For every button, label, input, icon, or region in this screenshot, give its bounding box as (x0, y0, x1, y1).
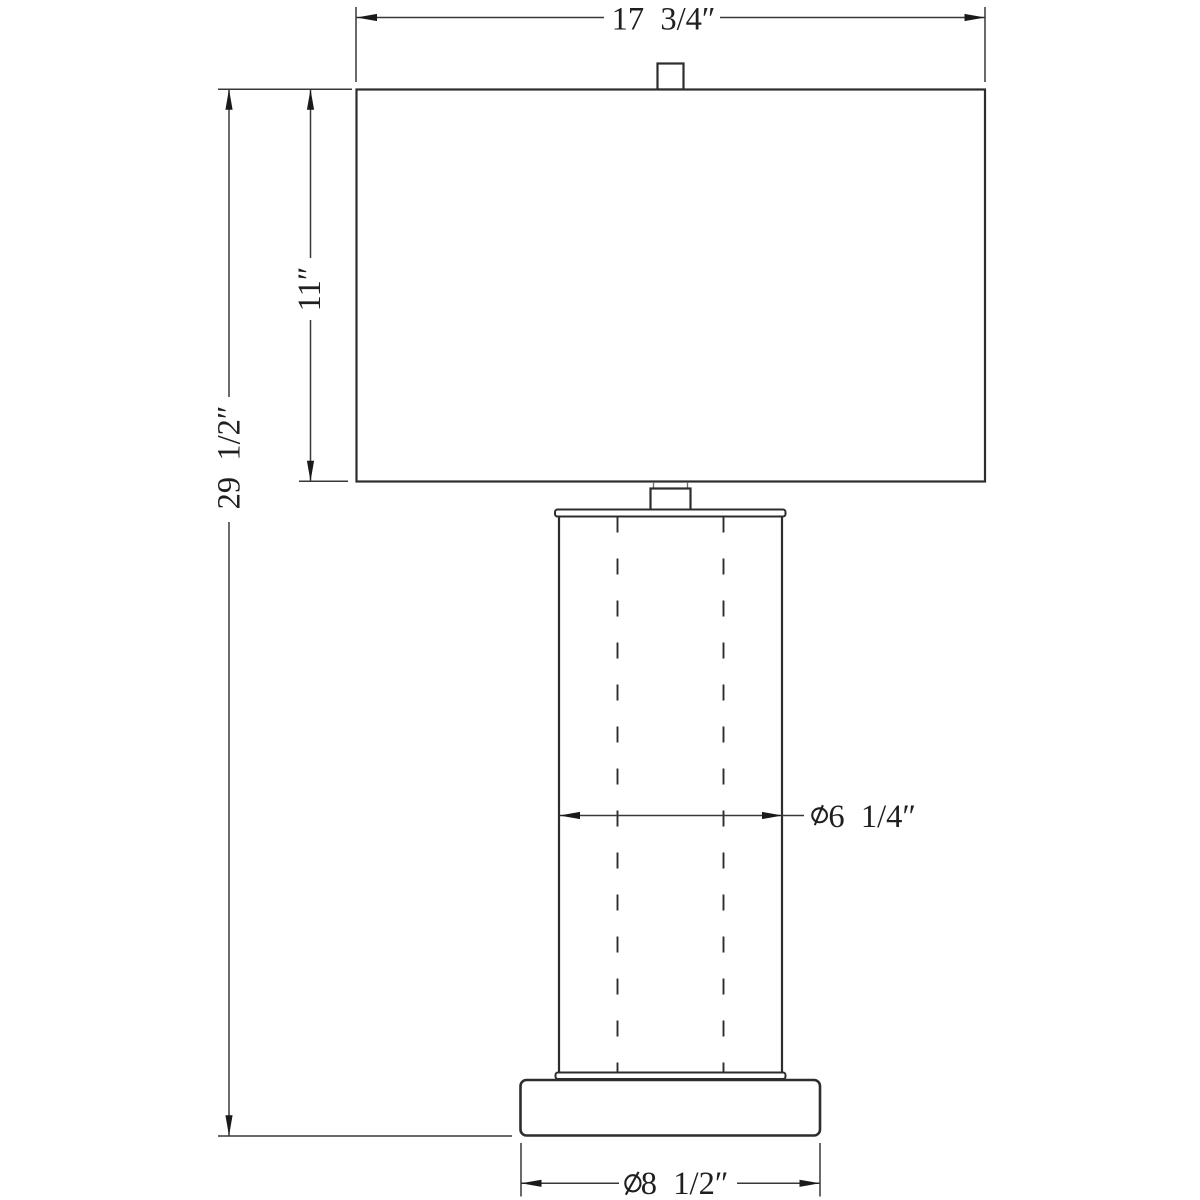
svg-text:6 1/4″: 6 1/4″ (828, 799, 916, 835)
svg-text:11″: 11″ (292, 267, 328, 312)
svg-text:8 1/2″: 8 1/2″ (641, 1166, 729, 1200)
svg-text:29 1/2″: 29 1/2″ (212, 406, 248, 510)
svg-text:17 3/4″: 17 3/4″ (612, 1, 716, 37)
